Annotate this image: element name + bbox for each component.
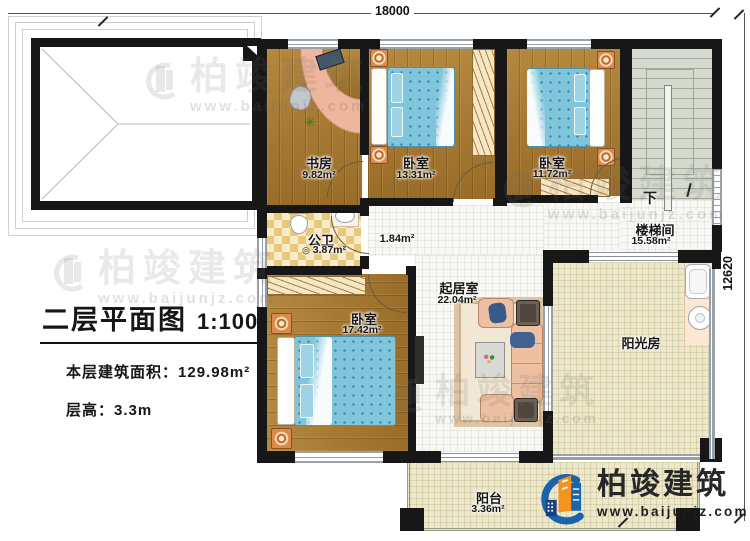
wall [360, 48, 369, 155]
window [543, 306, 553, 411]
balcony-sliding-door [441, 453, 519, 462]
window [257, 238, 267, 268]
bed-headboard [277, 337, 295, 425]
company-website: www.baijunjz.com [597, 504, 749, 519]
wall [383, 451, 441, 463]
bed-blanket-fold [527, 69, 545, 146]
plan-title-row: 二层平面图1:100 [40, 298, 266, 344]
floor-height-label: 层高： [66, 402, 114, 419]
window [380, 39, 473, 49]
wardrobe [267, 276, 366, 295]
floor-area-line: 本层建筑面积：129.98m² [40, 361, 266, 382]
dimension-right-label: 12620 [721, 252, 735, 295]
bed-pillow [574, 74, 586, 102]
watermark-logo-icon [48, 250, 90, 296]
floor-height-line: 层高：3.3m [40, 399, 266, 420]
bed-blanket-fold [436, 68, 454, 146]
side-table [514, 398, 538, 422]
nightstand [370, 49, 388, 67]
bed-headboard [371, 68, 387, 145]
wall [620, 48, 632, 203]
wall [712, 39, 722, 169]
wall [495, 48, 507, 206]
dimension-top-label: 18000 [371, 4, 414, 18]
side-table [516, 300, 540, 326]
window [288, 39, 338, 49]
wall [519, 451, 553, 463]
person [510, 332, 535, 348]
company-logo: 柏竣建筑 www.baijunjz.com [535, 468, 749, 530]
wall [257, 266, 362, 275]
room-area-bathroom-value: 3.87m² [313, 244, 346, 256]
room-area-bedroom-top: 13.31m² [396, 169, 435, 181]
stair-handrail [664, 85, 672, 211]
company-logo-text: 柏竣建筑 www.baijunjz.com [597, 468, 749, 519]
dimension-tick [734, 9, 745, 20]
title-block: 二层平面图1:100 本层建筑面积：129.98m² 层高：3.3m [40, 298, 266, 420]
room-area-balcony: 3.36m² [471, 503, 504, 515]
bathtub-inner [689, 269, 707, 294]
hallway-floor [368, 205, 544, 256]
table-flowers [482, 352, 496, 364]
wall [506, 195, 598, 203]
bed-headboard [589, 69, 605, 147]
bed-pillow [300, 344, 314, 378]
room-area-hallway: 1.84m² [380, 233, 415, 245]
bed-pillow [391, 107, 403, 137]
floor-height-value: 3.3m [114, 402, 152, 419]
person [488, 302, 508, 324]
window [712, 169, 722, 225]
bed-pillow [574, 107, 586, 135]
wall [591, 39, 722, 49]
window [295, 451, 383, 463]
sofa-single [480, 394, 514, 422]
room-area-bedroom-right: 11.72m² [533, 168, 572, 180]
room-area-bedroom-big: 17.42m² [342, 324, 381, 336]
room-area-bathroom: ◎ 3.87m² [302, 244, 346, 256]
sunroom-glass-wall [709, 269, 715, 459]
plant-icon: ✳ [304, 114, 316, 131]
floor-area-value: 129.98m² [178, 364, 250, 381]
room-area-living: 22.04m² [437, 294, 476, 306]
company-name: 柏竣建筑 [597, 468, 749, 501]
company-logo-icon [535, 468, 591, 530]
nightstand [597, 51, 615, 69]
room-area-study: 9.82m² [302, 169, 335, 181]
floor-area-label: 本层建筑面积： [66, 364, 178, 381]
wall [368, 198, 453, 206]
dimension-line-right [744, 13, 745, 521]
wardrobe [472, 49, 495, 156]
plan-title: 二层平面图 [42, 305, 187, 335]
wall [257, 451, 295, 463]
floor-drain-icon: ◎ [302, 245, 310, 255]
nightstand [271, 428, 292, 449]
sunroom-sliding-door [589, 252, 678, 261]
roof-hip-lines [40, 47, 252, 201]
floor-plan-page: 18000 12620 [0, 0, 750, 541]
window [527, 39, 591, 49]
bed-pillow [391, 73, 403, 103]
wall [257, 205, 369, 213]
corner-post [400, 508, 424, 531]
nightstand [271, 313, 292, 334]
stair-direction-label: 下 [643, 188, 657, 208]
room-area-stairwell: 15.58m² [631, 235, 670, 247]
nightstand [370, 146, 388, 164]
wall [678, 250, 722, 263]
watermark-company: 柏竣建筑 [98, 248, 278, 290]
plan-scale: 1:100 [197, 309, 258, 334]
wall [338, 39, 380, 49]
wall [543, 411, 553, 452]
tv [415, 336, 424, 384]
wall [543, 250, 589, 263]
room-label-sunroom: 阳光房 [621, 333, 660, 352]
sunroom-glass-wall [553, 454, 700, 460]
round-sink-basin [695, 313, 705, 323]
bed-pillow [300, 384, 314, 418]
dimension-line-top [8, 13, 714, 14]
